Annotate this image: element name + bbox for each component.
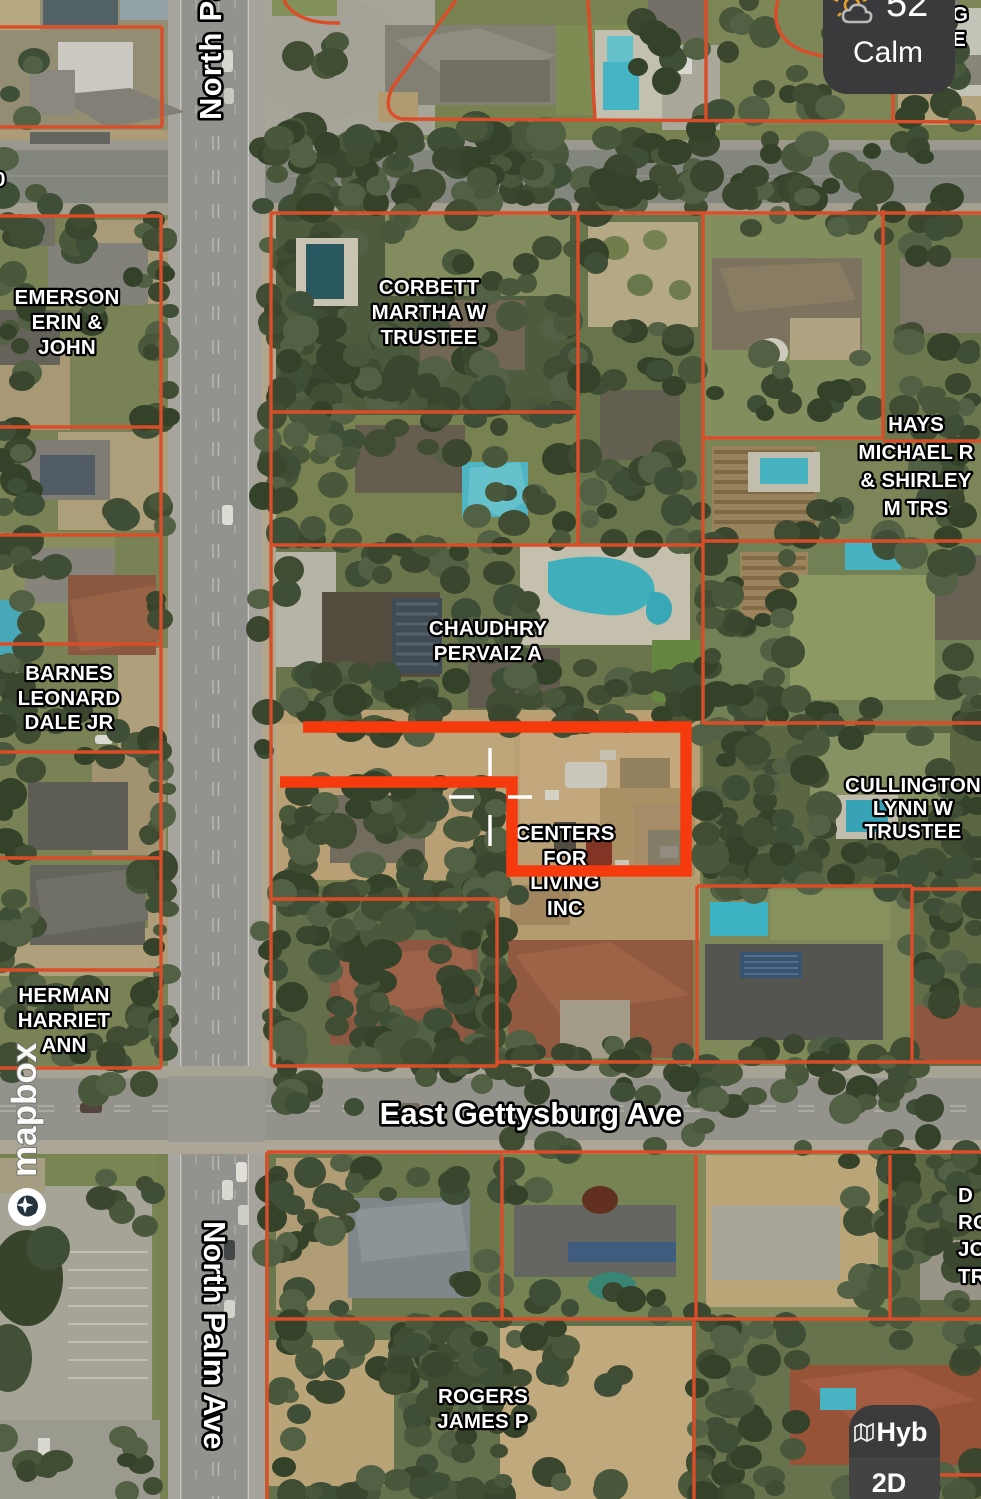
- svg-text:ROGERS: ROGERS: [438, 1385, 528, 1408]
- svg-text:ERIN &: ERIN &: [32, 311, 103, 334]
- svg-text:JO: JO: [958, 1238, 981, 1261]
- svg-text:HERMAN: HERMAN: [18, 984, 109, 1007]
- svg-text:EMERSON: EMERSON: [14, 286, 119, 309]
- svg-text:North Palm Ave: North Palm Ave: [197, 1221, 232, 1450]
- svg-text:RO: RO: [958, 1211, 981, 1234]
- svg-text:TR: TR: [958, 1265, 981, 1288]
- svg-text:BARNES: BARNES: [25, 662, 113, 685]
- svg-text:D: D: [958, 1184, 973, 1207]
- svg-text:HAYS: HAYS: [888, 413, 944, 436]
- svg-text:Calm: Calm: [853, 36, 923, 69]
- svg-text:M TRS: M TRS: [884, 497, 949, 520]
- svg-text:& SHIRLEY: & SHIRLEY: [860, 469, 971, 492]
- svg-text:TRUSTEE: TRUSTEE: [864, 820, 961, 843]
- svg-text:CHAUDHRY: CHAUDHRY: [429, 617, 547, 640]
- svg-text:CORBETT: CORBETT: [379, 276, 480, 299]
- svg-text:MICHAEL R: MICHAEL R: [858, 441, 973, 464]
- svg-text:JAMES P: JAMES P: [437, 1410, 528, 1433]
- svg-text:mapbox: mapbox: [5, 1042, 44, 1177]
- svg-text:52: 52: [886, 0, 928, 25]
- svg-text:CENTERS: CENTERS: [515, 822, 614, 845]
- svg-text:North Palm Ave: North Palm Ave: [193, 0, 228, 120]
- svg-text:MARTHA W: MARTHA W: [372, 301, 487, 324]
- svg-text:PERVAIZ A: PERVAIZ A: [434, 642, 543, 665]
- svg-text:East Gettysburg Ave: East Gettysburg Ave: [380, 1096, 683, 1131]
- svg-text:0: 0: [0, 168, 5, 191]
- svg-text:2D: 2D: [872, 1468, 907, 1498]
- svg-text:LEONARD: LEONARD: [18, 687, 121, 710]
- svg-text:LYNN W: LYNN W: [873, 797, 954, 820]
- svg-text:ANN: ANN: [41, 1034, 86, 1057]
- svg-text:TRUSTEE: TRUSTEE: [380, 326, 477, 349]
- svg-text:Hyb: Hyb: [876, 1417, 927, 1447]
- svg-text:JOHN: JOHN: [38, 336, 96, 359]
- svg-text:INC: INC: [547, 897, 583, 920]
- svg-text:HARRIET: HARRIET: [18, 1009, 111, 1032]
- svg-text:CULLINGTON: CULLINGTON: [845, 774, 981, 797]
- svg-text:DALE JR: DALE JR: [24, 711, 113, 734]
